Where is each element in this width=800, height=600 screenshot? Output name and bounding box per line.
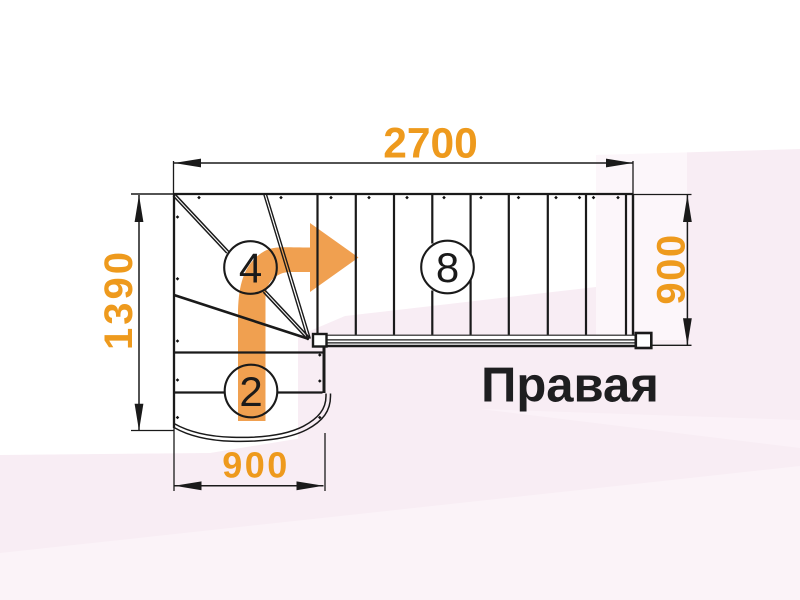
svg-text:1390: 1390 <box>97 249 141 350</box>
svg-text:4: 4 <box>239 245 262 292</box>
svg-text:2700: 2700 <box>383 121 478 168</box>
svg-text:Правая: Правая <box>481 358 659 412</box>
svg-text:2: 2 <box>239 368 262 415</box>
svg-text:900: 900 <box>222 445 290 486</box>
svg-text:8: 8 <box>436 244 459 291</box>
svg-text:900: 900 <box>650 233 694 304</box>
